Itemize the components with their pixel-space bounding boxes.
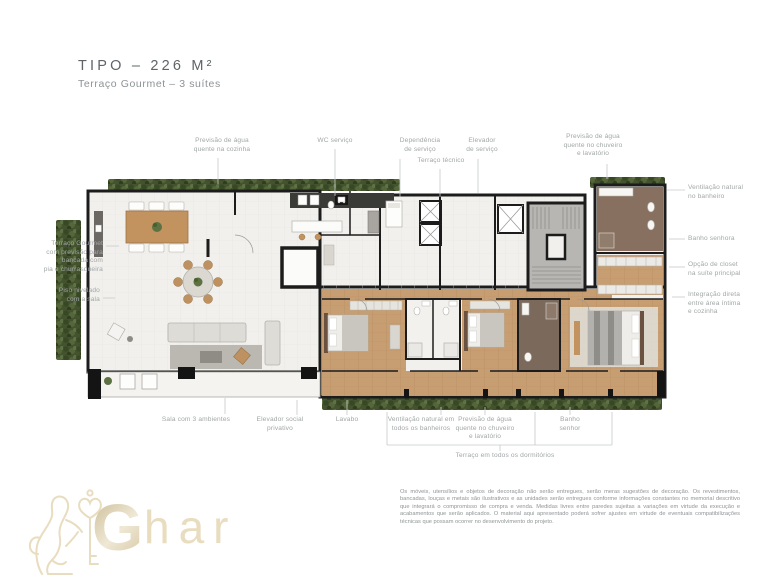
callout-ventilacao-todos-banheiros: Ventilação natural em todos os banheiros: [388, 416, 455, 433]
callout-lavabo: Lavabo: [336, 416, 359, 425]
legal-disclaimer: Os móveis, utensílios e objetos de decor…: [400, 489, 740, 526]
callout-terraco-tecnico: Terraço técnico: [418, 157, 465, 166]
callout-dependencia-servico: Dependência de serviço: [400, 137, 441, 154]
callout-banho-senhor: Banho senhor: [559, 416, 580, 433]
logo-initial: G: [92, 494, 143, 560]
banho-senhor: [518, 299, 560, 371]
floorplan-page: TIPO – 226 M² Terraço Gourmet – 3 suítes: [0, 0, 768, 576]
floorplan-drawing: [50, 175, 680, 415]
callout-agua-quente-cozinha: Previsão de água quente na cozinha: [194, 137, 250, 154]
callout-ventilacao-banheiro: Ventilação natural no banheiro: [688, 184, 743, 201]
mid-bathrooms: [406, 299, 460, 359]
callout-integracao-direta: Integração direta entre área íntima e co…: [688, 291, 740, 317]
suite-2: [464, 301, 510, 351]
callout-piso-nivelado: Piso nivelado com a sala: [10, 287, 100, 304]
callout-sala-3-ambientes: Sala com 3 ambientes: [162, 416, 230, 425]
page-subtitle: Terraço Gourmet – 3 suítes: [78, 78, 221, 90]
callout-agua-quente-chuveiro-bottom: Previsão de água quente no chuveiro e la…: [456, 416, 515, 442]
callout-wc-servico: WC serviço: [317, 137, 352, 146]
callout-terraco-gourmet: Terraço Gourmet com previsão para bancad…: [10, 240, 103, 274]
callout-terraco-dormitorios: Terraço em todos os dormitórios: [456, 452, 555, 461]
callout-elevador-servico: Elevador de serviço: [466, 137, 498, 154]
callout-elevador-social: Elevador social privativo: [257, 416, 304, 433]
banho-senhora: [597, 187, 663, 251]
logo-text: har: [144, 504, 237, 550]
callout-agua-quente-chuveiro-top: Previsão de água quente no chuveiro e la…: [564, 133, 623, 159]
stair-core: [528, 203, 585, 290]
page-title: TIPO – 226 M²: [78, 58, 215, 74]
callout-banho-senhora: Banho senhora: [688, 235, 735, 244]
callout-opcao-closet: Opção de closet na suíte principal: [688, 261, 741, 278]
brand-logo: G har: [28, 478, 258, 573]
suite-principal: [570, 307, 658, 367]
